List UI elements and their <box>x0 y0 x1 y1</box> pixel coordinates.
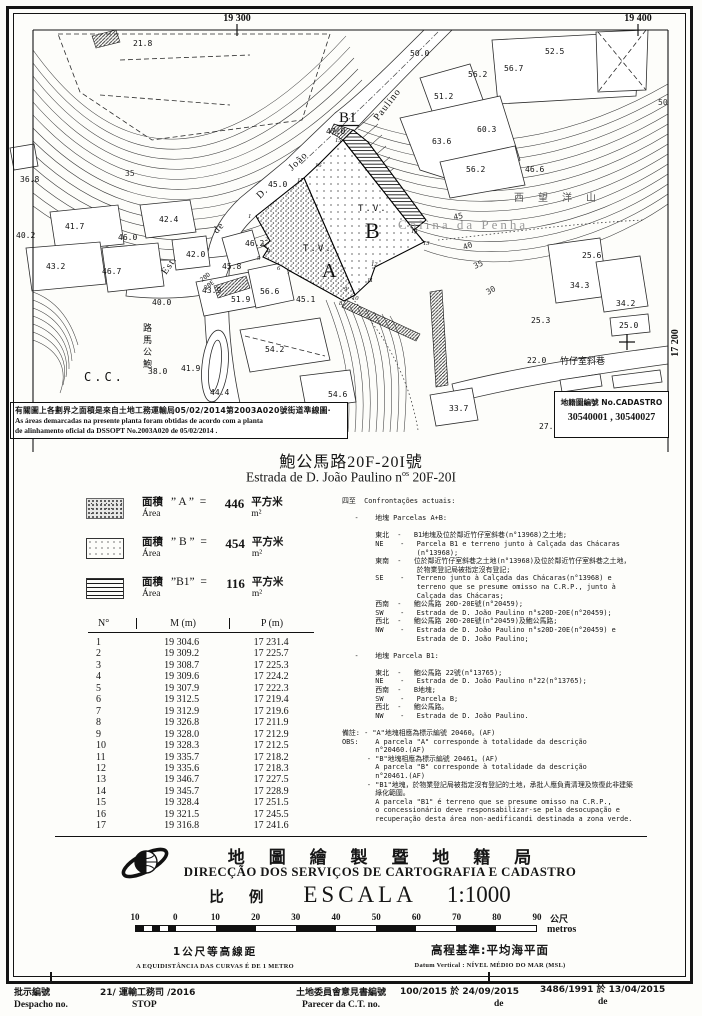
reference-value-line2: de <box>598 997 665 1009</box>
despacho-value: 21/ 運輸工務司 /2016 STOP <box>100 988 195 1011</box>
despacho-label-zh: 批示編號 <box>14 988 68 1000</box>
despacho-label-pt: Despacho no. <box>14 1000 68 1012</box>
parecer-field: 土地委員會意見書編號 Parecer da C.T. no. <box>296 988 386 1011</box>
parecer-value: 100/2015 於 24/09/2015 de <box>400 987 519 1010</box>
page-border-inner <box>13 13 686 977</box>
frame-divider-stub <box>488 972 490 983</box>
despacho-value-line1: 21/ 運輸工務司 /2016 <box>100 988 195 1000</box>
reference-value-line1: 3486/1991 於 13/04/2015 <box>540 985 665 997</box>
despacho-field: 批示編號 Despacho no. <box>14 988 68 1011</box>
parecer-label-zh: 土地委員會意見書編號 <box>296 988 386 1000</box>
parecer-value-line2: de <box>494 999 519 1011</box>
parecer-value-line1: 100/2015 於 24/09/2015 <box>400 987 519 999</box>
cadastral-plan-page: 19 30019 40017 20021.836.83540.241.746.0… <box>0 0 702 1016</box>
despacho-value-line2: STOP <box>132 1000 195 1012</box>
reference-value: 3486/1991 於 13/04/2015 de <box>540 985 665 1008</box>
parecer-label-pt: Parecer da C.T. no. <box>296 1000 386 1012</box>
frame-divider-stub <box>50 972 52 983</box>
